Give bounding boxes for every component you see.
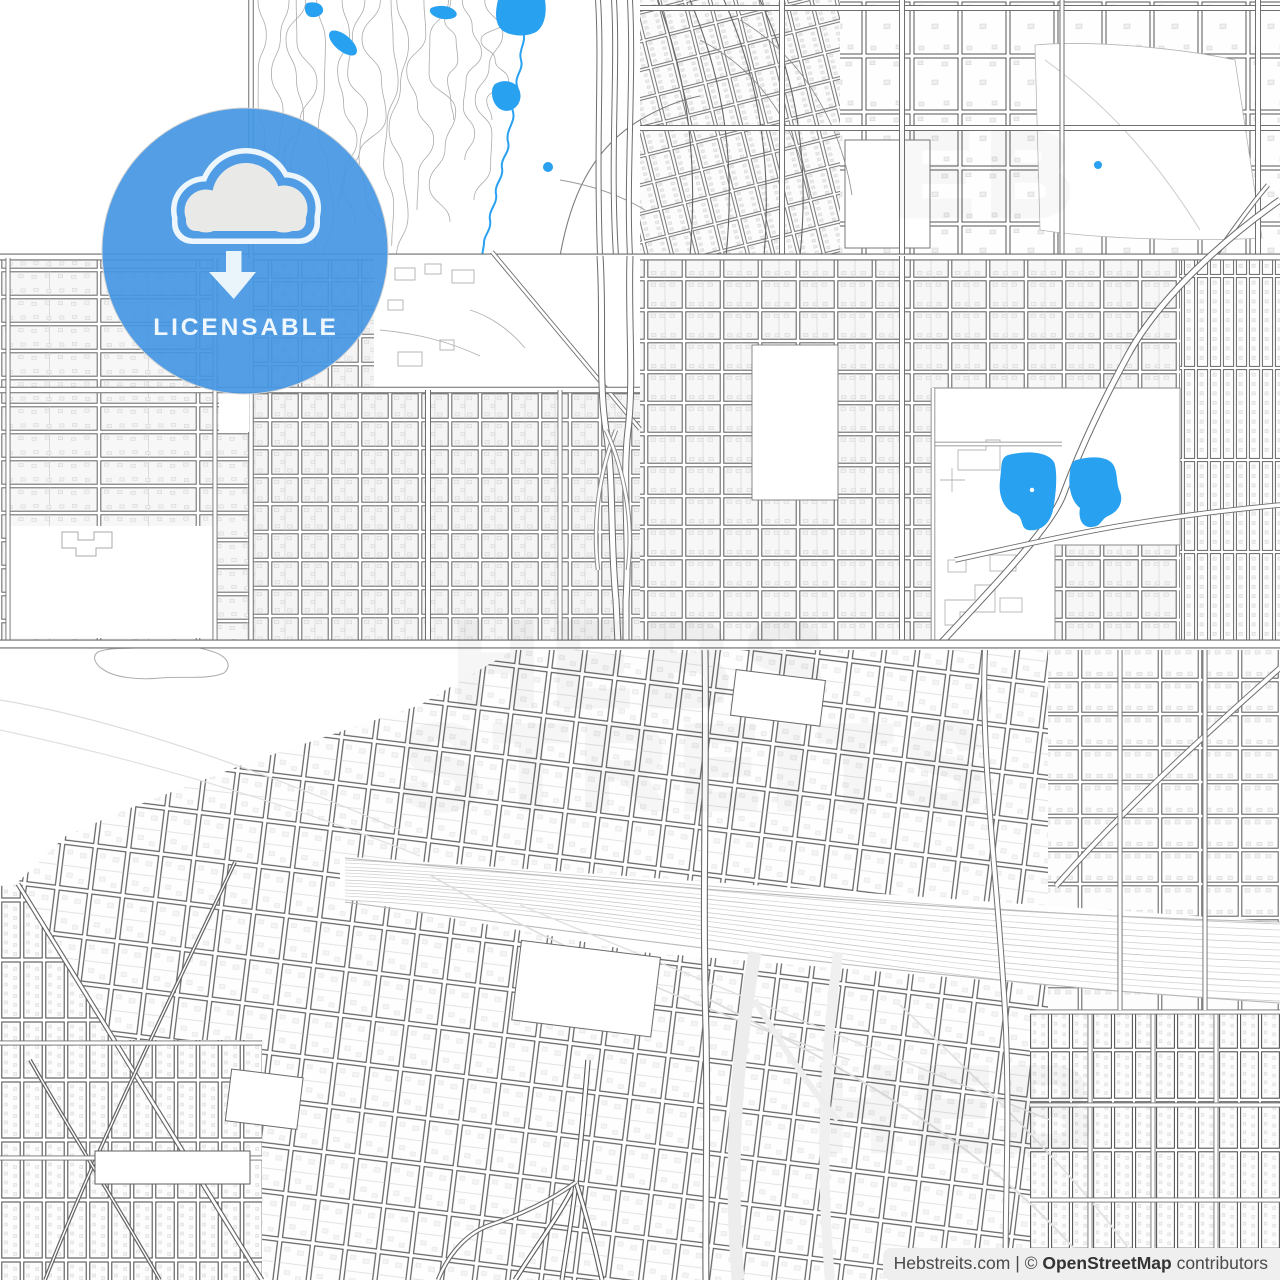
svg-text:HEB: HEB xyxy=(814,1044,1105,1176)
svg-text:EB: EB xyxy=(894,109,1086,241)
svg-text:STREITS: STREITS xyxy=(402,702,998,834)
svg-text:Hebstreits.com | © OpenStreetM: Hebstreits.com | © OpenStreetMap contrib… xyxy=(894,1253,1269,1273)
svg-text:LICENSABLE: LICENSABLE xyxy=(153,314,339,341)
